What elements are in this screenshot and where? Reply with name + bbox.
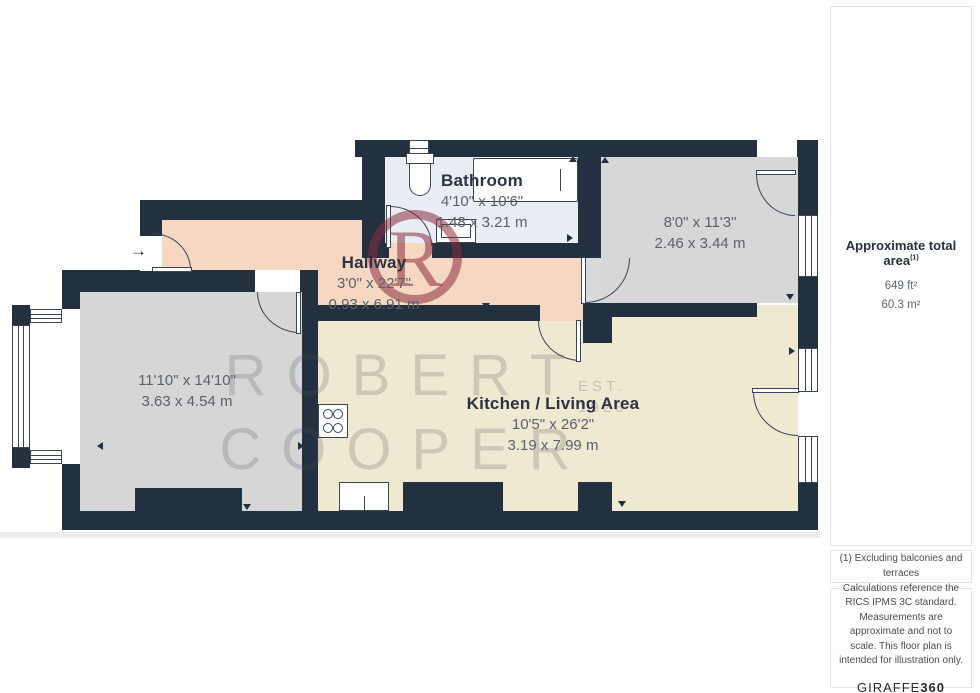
marker-arrow — [97, 442, 103, 450]
room-dim-imperial: 3'0" x 22'7" — [329, 273, 420, 294]
door-leaf — [756, 170, 796, 175]
plan-shadow-strip — [0, 532, 820, 538]
wall-segment — [140, 200, 162, 236]
area-title-superscript: (1) — [910, 255, 919, 262]
room-dim-metric: 0.93 x 6.91 m — [329, 294, 420, 315]
toilet-bowl — [409, 163, 431, 196]
sidebar-area-panel: Approximate total area(1) 649 ft² 60.3 m… — [830, 6, 972, 546]
wall-segment — [140, 200, 370, 220]
room-dim-metric: 1.48 x 3.21 m — [437, 212, 528, 233]
room-dim-imperial: 11'10" x 14'10" — [138, 370, 236, 391]
entry-direction-arrow: → — [130, 241, 147, 261]
doorway-threshold-peach — [540, 305, 583, 321]
wall-segment — [62, 511, 818, 530]
bay-window-top — [30, 309, 62, 323]
room-dim-imperial: 10'5" x 26'2" — [467, 414, 640, 435]
marker-arrow — [786, 294, 794, 300]
room-name: Kitchen / Living Area — [467, 393, 640, 414]
room-name: Bathroom — [437, 170, 528, 191]
wall-segment — [583, 317, 612, 343]
area-title: Approximate total area(1) — [831, 238, 971, 268]
right-door-opening — [798, 392, 818, 436]
bay-window-left — [12, 325, 30, 448]
doorway-threshold-white — [255, 270, 300, 292]
room-label-top-right: 8'0" x 11'3" 2.46 x 3.44 m — [655, 212, 746, 254]
marker-arrow — [243, 283, 251, 289]
wall-segment — [798, 140, 818, 215]
area-value-ft: 649 ft² — [885, 277, 918, 295]
marker-arrow — [569, 156, 577, 162]
room-label-left: 11'10" x 14'10" 3.63 x 4.54 m — [138, 370, 236, 412]
marker-arrow — [601, 157, 609, 163]
door-leaf — [296, 292, 301, 334]
disclaimer-text: Calculations reference the RICS IPMS 3C … — [831, 582, 971, 669]
window — [798, 348, 818, 392]
wall-segment — [583, 303, 757, 317]
brand-name: GIRAFFE — [857, 680, 920, 693]
wall-segment — [300, 270, 318, 292]
area-value-m: 60.3 m² — [882, 296, 921, 314]
bay-window-bottom — [30, 450, 62, 464]
entry-door-opening — [757, 140, 797, 157]
room-label-kitchen: Kitchen / Living Area 10'5" x 26'2" 3.19… — [467, 393, 640, 456]
sidebar-disclaimer-panel: Calculations reference the RICS IPMS 3C … — [830, 588, 972, 688]
floorplan-page: → ROBERT COOPER EST. 1928 R Bathroom 4'1… — [0, 0, 980, 693]
door-leaf — [752, 388, 799, 393]
wall-segment — [798, 277, 818, 348]
marker-arrow — [789, 347, 795, 355]
marker-arrow — [567, 234, 573, 242]
kitchen-sink-unit — [339, 482, 389, 511]
door-leaf — [581, 257, 586, 304]
wall-segment — [12, 448, 30, 468]
room-dim-metric: 3.19 x 7.99 m — [467, 435, 640, 456]
room-dim-imperial: 4'10" x 10'6" — [437, 191, 528, 212]
marker-arrow — [589, 180, 595, 188]
wall-segment — [62, 270, 80, 309]
room-name: Hallway — [329, 252, 420, 273]
marker-arrow — [482, 303, 490, 309]
sidebar-footnote-panel: (1) Excluding balconies and terraces — [830, 550, 972, 583]
room-dim-imperial: 8'0" x 11'3" — [655, 212, 746, 233]
room-label-bathroom: Bathroom 4'10" x 10'6" 1.48 x 3.21 m — [437, 170, 528, 233]
door-leaf — [152, 267, 192, 272]
brand-suffix: 360 — [920, 680, 945, 693]
chimney-breast — [578, 482, 612, 511]
room-label-hallway: Hallway 3'0" x 22'7" 0.93 x 6.91 m — [329, 252, 420, 315]
wall-segment — [12, 305, 30, 325]
window — [798, 215, 818, 277]
room-dim-metric: 3.63 x 4.54 m — [138, 391, 236, 412]
room-dim-metric: 2.46 x 3.44 m — [655, 233, 746, 254]
chimney-breast — [403, 482, 503, 511]
footnote-text: (1) Excluding balconies and terraces — [831, 552, 971, 581]
wall-segment — [62, 270, 255, 292]
marker-arrow — [243, 504, 251, 510]
chimney-breast — [135, 488, 242, 511]
bay-window-floor — [30, 309, 80, 464]
giraffe360-logo: GIRAFFE360 — [857, 680, 945, 693]
wall-segment — [578, 140, 601, 257]
window — [798, 436, 818, 483]
marker-arrow — [618, 501, 626, 507]
area-title-text: Approximate total area — [846, 238, 957, 268]
wall-segment — [62, 464, 80, 511]
